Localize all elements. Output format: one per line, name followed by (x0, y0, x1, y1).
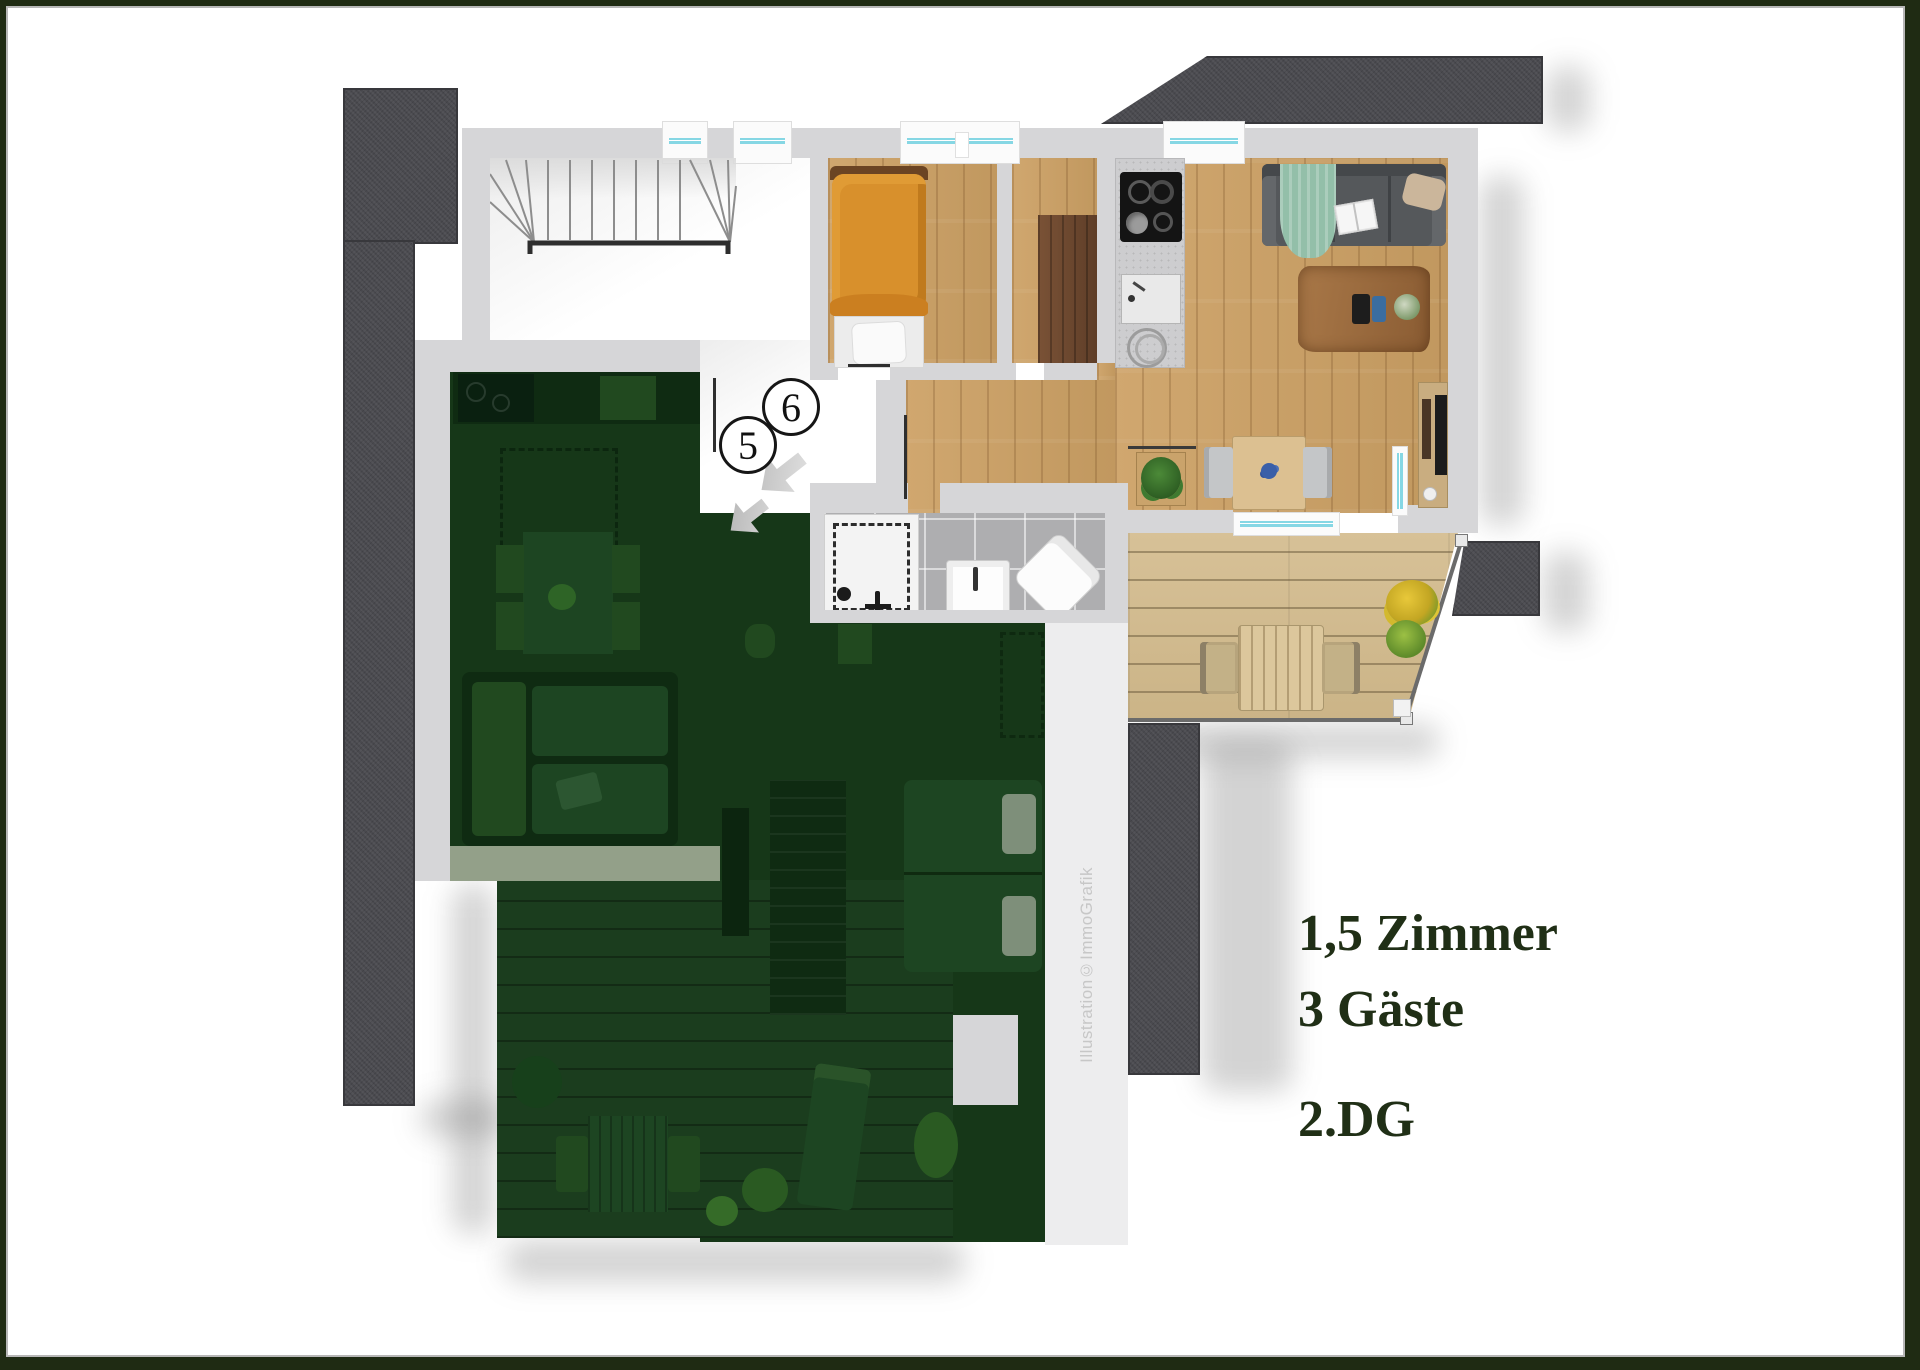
green-bath-sink (838, 624, 872, 664)
window-glass (1170, 138, 1238, 144)
green-sofa (462, 672, 678, 846)
terrace-chair (1322, 642, 1360, 694)
phone (1372, 296, 1386, 322)
dining-table (1232, 436, 1306, 510)
terrace-rail-bottom (1128, 718, 1410, 722)
wardrobe (1038, 215, 1097, 363)
corridor-door-leaf (904, 415, 907, 499)
wall-dining-bottom (1128, 510, 1233, 533)
skylight-window (733, 121, 792, 164)
wall-bathroom-right (1105, 483, 1128, 623)
staircase (490, 156, 738, 256)
entrance-door-leaf (713, 378, 716, 452)
bed-single (830, 166, 928, 368)
shadow (1543, 552, 1589, 632)
floor-label: 2.DG (1298, 1082, 1415, 1158)
dining-chair (1204, 447, 1233, 498)
unit-marker-6-label: 6 (781, 384, 801, 431)
sink-tap-icon (973, 567, 978, 591)
table-plant (1394, 294, 1420, 320)
terrace-sliding-door (1233, 512, 1340, 536)
roof-strip-left-wide (343, 88, 458, 244)
green-bush (914, 1112, 958, 1178)
unit-marker-5-label: 5 (738, 422, 758, 469)
unit-marker-5: 5 (719, 416, 777, 474)
roof-strip-left (343, 240, 415, 1106)
wall-terrace-top-right (1398, 505, 1478, 533)
wall-bathroom-left (810, 483, 824, 623)
flower-vase (1261, 463, 1277, 479)
plant-pot (1136, 452, 1186, 506)
window-glass (669, 138, 701, 144)
skylight-window-wide (900, 121, 1020, 164)
green-tv-board (722, 808, 749, 936)
green-shower-outline (1000, 632, 1044, 738)
shadow (505, 1240, 965, 1282)
terrace-post (1455, 534, 1468, 547)
passage-floor (1097, 363, 1115, 380)
hifi (1422, 399, 1431, 459)
shower-head-icon (837, 587, 851, 601)
wall-bathroom-top (940, 483, 1105, 513)
green-wardrobe (770, 780, 846, 1015)
green-cooktop (458, 374, 534, 422)
bed-pillow (851, 321, 907, 366)
roof-strip-bedroom-right (1128, 723, 1200, 1075)
wall-greenterrace-right (953, 1015, 1018, 1105)
coffee-table (1298, 266, 1430, 352)
dining-chair (1303, 447, 1332, 498)
wall-right-outer (1448, 128, 1478, 513)
green-sink (600, 376, 656, 420)
floorplan-page: 6 5 Illustration©ImmoGrafik 1,5 Zimmer 3… (0, 0, 1920, 1370)
shadow (1202, 742, 1292, 1092)
tv-sideboard (1418, 382, 1448, 508)
terrace-chair (1200, 642, 1238, 694)
green-bath-wc (745, 624, 775, 658)
tv-screen (1435, 395, 1447, 475)
wall-bathroom-bottom (810, 610, 1128, 623)
green-terrace-table (588, 1116, 668, 1212)
wall-stairwell-left (462, 128, 490, 345)
green-bush (706, 1196, 738, 1226)
wall-bedroom-dressing (997, 158, 1012, 363)
wall-bathroom-top (810, 483, 908, 513)
remote-control (1352, 294, 1370, 324)
green-chair (496, 602, 524, 650)
green-terrace-chair (556, 1136, 588, 1192)
watermark: Illustration©ImmoGrafik (1046, 623, 1128, 1183)
shadow (1480, 176, 1524, 526)
green-bed (904, 780, 1042, 972)
shadow (452, 884, 494, 1234)
terrace-table (1238, 625, 1324, 711)
watermark-text: Illustration©ImmoGrafik (1077, 867, 1097, 1063)
wall-green-top (415, 340, 700, 372)
terrace-side-door (1392, 446, 1408, 516)
wall-rooms-bottom (1044, 363, 1097, 380)
green-chair (612, 545, 640, 593)
green-table-plant (548, 584, 576, 610)
green-bush (742, 1168, 788, 1212)
green-chair (612, 602, 640, 650)
greenunit-wallband (450, 846, 720, 881)
roof-pillar-terrace (1452, 541, 1540, 616)
door-glass (1397, 453, 1403, 509)
plant-yellow (1386, 580, 1438, 626)
green-terrace-chair (668, 1136, 700, 1192)
wall-dressing-living (1097, 158, 1115, 363)
cooktop (1120, 172, 1182, 242)
plant-green (1386, 620, 1426, 658)
green-bush (512, 1056, 562, 1108)
title-block: 1,5 Zimmer 3 Gäste (1298, 896, 1558, 1048)
shadow (1546, 66, 1590, 132)
wall-left-outer (415, 340, 450, 881)
door-glass (1240, 521, 1333, 527)
shower (824, 514, 919, 620)
roof-block-top-right (1101, 56, 1543, 124)
green-chair (496, 545, 524, 593)
guests-label: 3 Gäste (1298, 972, 1558, 1048)
kitchen-sink (1121, 274, 1181, 324)
wall-hall-bedroom (810, 158, 828, 380)
bedroom-door-leaf (848, 364, 890, 367)
dish-drainer (1121, 326, 1181, 366)
railing-line (1128, 446, 1196, 449)
sofa-throw (1280, 164, 1336, 258)
deck-box (1393, 699, 1411, 717)
window-glass (740, 138, 785, 144)
rooms-label: 1,5 Zimmer (1298, 896, 1558, 972)
